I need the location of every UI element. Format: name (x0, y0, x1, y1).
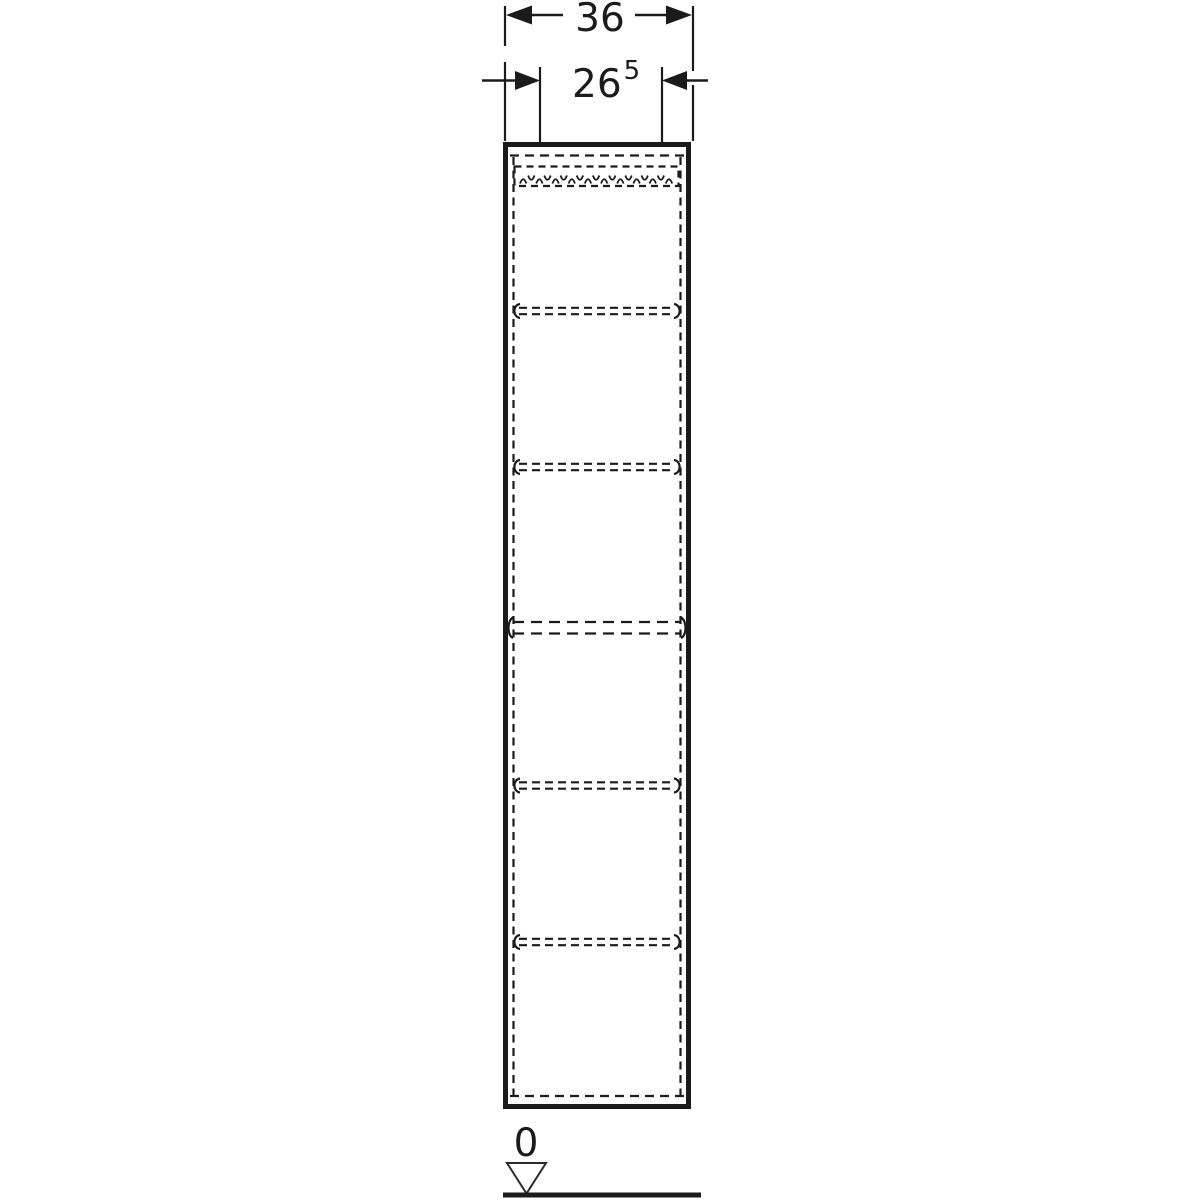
dimension-inner-width-superscript: 5 (624, 56, 641, 86)
arrowhead-inner-right-icon (662, 71, 687, 90)
dimension-inner-width-main: 26 (572, 62, 622, 107)
cabinet-elevation-drawing: 36 265 (0, 0, 1200, 1200)
arrowhead-inner-left-icon (515, 71, 540, 90)
cabinet-outline (506, 145, 689, 1107)
arrowhead-right-icon (666, 6, 692, 25)
dimension-outer-width-label: 36 (575, 0, 625, 41)
floor-datum: 0 (503, 1121, 701, 1195)
cabinet-body (506, 145, 689, 1107)
technical-drawing-canvas: 36 265 (0, 0, 1200, 1200)
datum-zero-label: 0 (514, 1121, 539, 1166)
arrowhead-left-icon (506, 6, 532, 25)
datum-triangle-icon (507, 1163, 546, 1194)
dimension-inner-width-label: 265 (572, 56, 640, 107)
